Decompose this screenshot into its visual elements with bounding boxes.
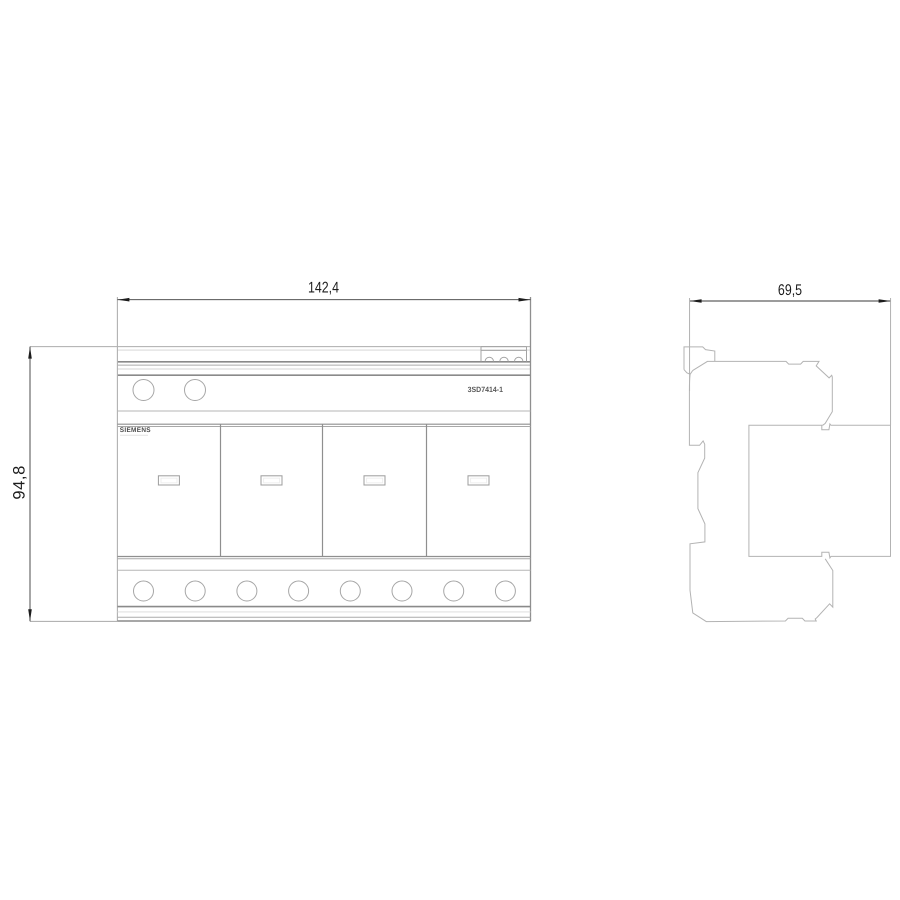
svg-text:69,5: 69,5 <box>778 282 802 299</box>
svg-text:SIEMENS: SIEMENS <box>120 427 151 434</box>
svg-text:94,8: 94,8 <box>11 465 29 500</box>
svg-text:142,4: 142,4 <box>308 279 339 296</box>
svg-text:3SD7414-1: 3SD7414-1 <box>468 385 504 394</box>
